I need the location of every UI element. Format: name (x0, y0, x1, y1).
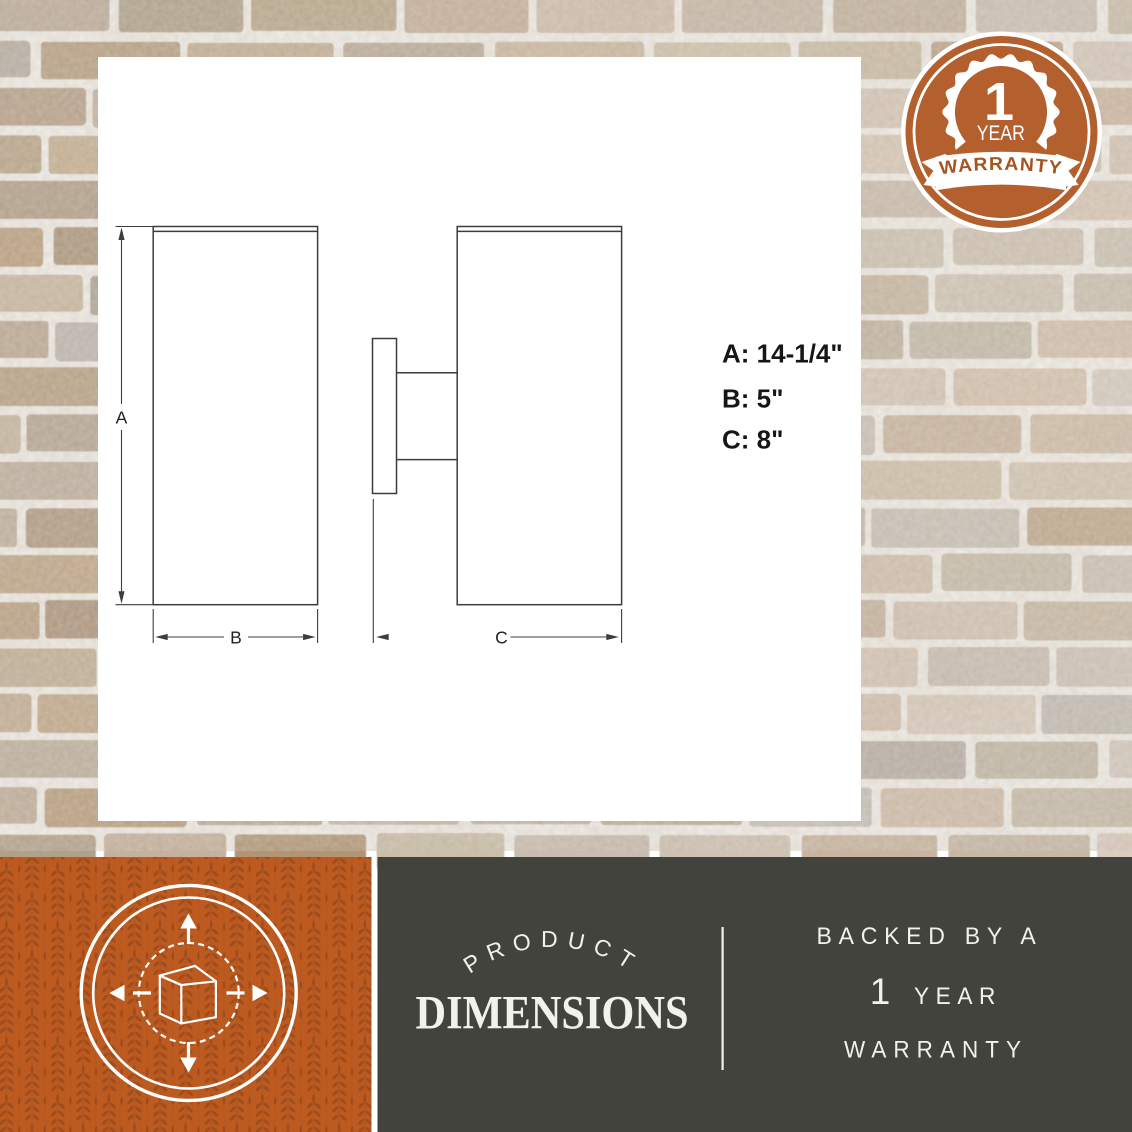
svg-text:DIMENSIONS: DIMENSIONS (416, 987, 689, 1040)
svg-text:A: A (116, 408, 128, 428)
svg-text:C: C (495, 628, 508, 648)
svg-text:BACKED BY A: BACKED BY A (817, 923, 1043, 950)
svg-text:WARRANTY: WARRANTY (844, 1037, 1028, 1064)
svg-text:1: 1 (870, 971, 891, 1012)
svg-text:YEAR: YEAR (977, 122, 1025, 145)
svg-text:B: 5": B: 5" (722, 384, 783, 414)
svg-text:A: 14-1/4": A: 14-1/4" (722, 339, 843, 369)
svg-text:YEAR: YEAR (914, 983, 1002, 1010)
svg-text:B: B (230, 628, 242, 648)
svg-text:C: 8": C: 8" (722, 425, 783, 455)
